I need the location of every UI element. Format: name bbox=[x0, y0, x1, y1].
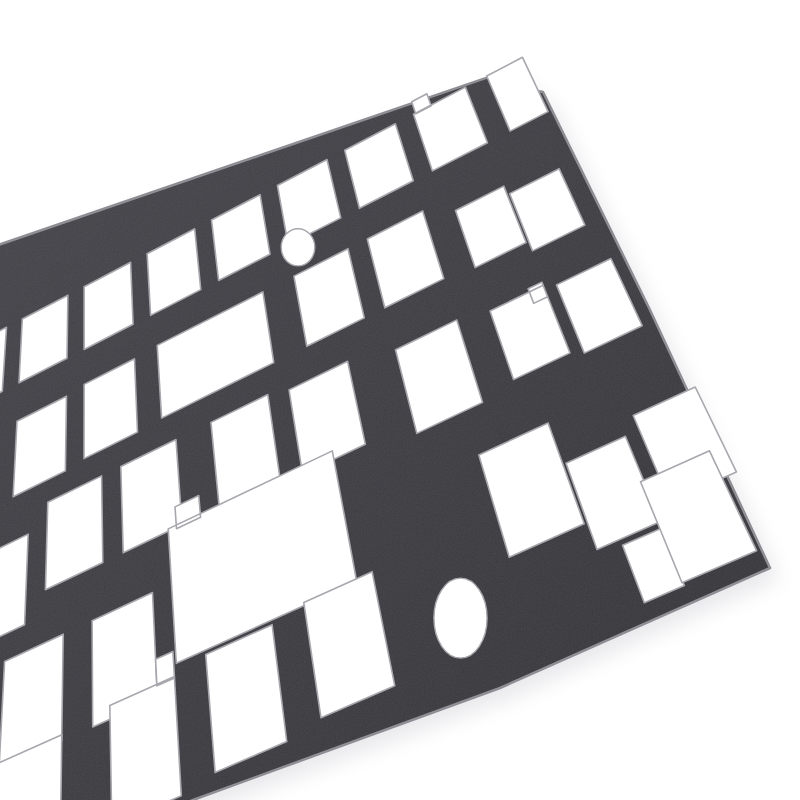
keyboard-plate-photo bbox=[0, 0, 800, 800]
screw-hole bbox=[434, 578, 487, 658]
product-photo bbox=[0, 0, 800, 800]
screw-hole bbox=[281, 229, 315, 266]
